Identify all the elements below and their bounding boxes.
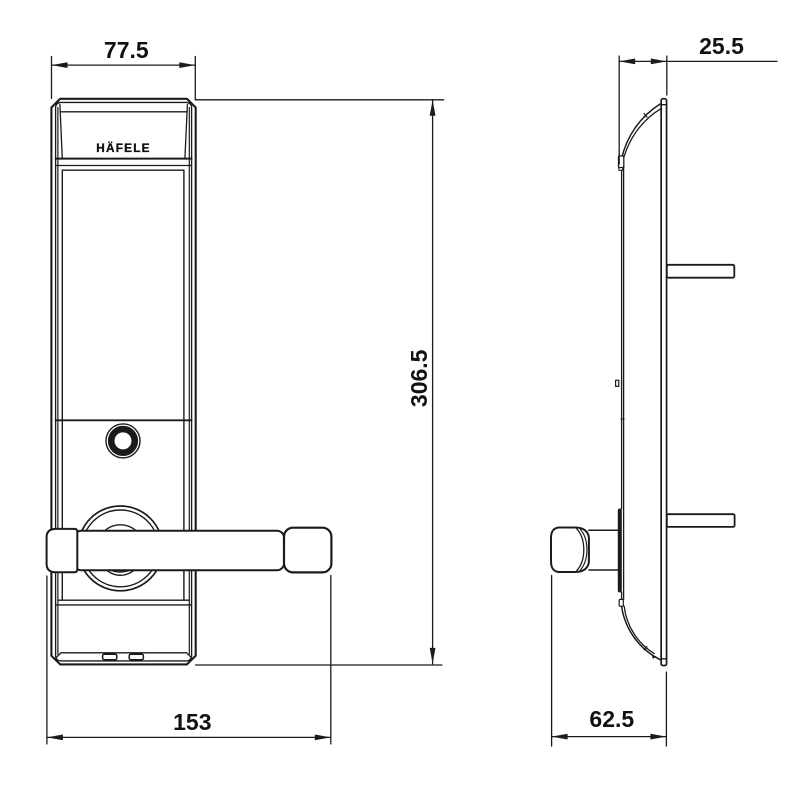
svg-text:HÄFELE: HÄFELE <box>96 142 151 155</box>
svg-text:153: 153 <box>173 709 211 735</box>
svg-text:306.5: 306.5 <box>406 349 432 407</box>
svg-text:62.5: 62.5 <box>589 706 634 732</box>
svg-text:25.5: 25.5 <box>699 33 744 59</box>
svg-text:77.5: 77.5 <box>104 37 149 63</box>
